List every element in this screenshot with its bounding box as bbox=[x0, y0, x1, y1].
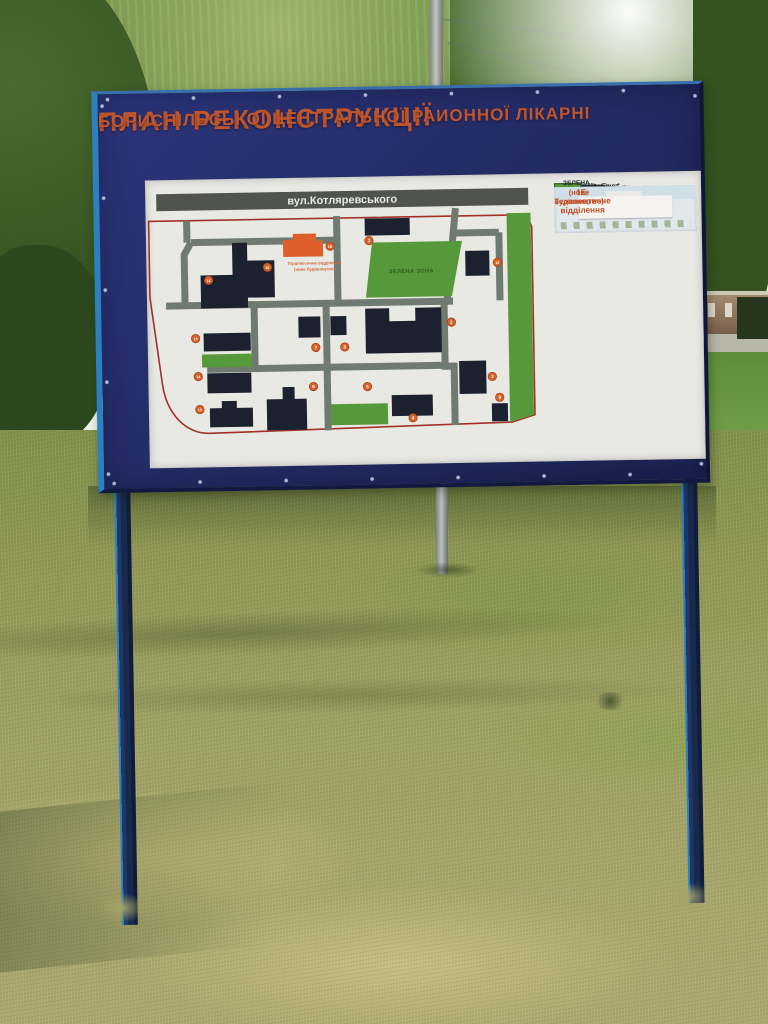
map-marker-label: 11 bbox=[207, 279, 211, 283]
rivets bbox=[112, 471, 698, 486]
new-building-label-2: (нове будівництво) bbox=[294, 266, 336, 272]
site-map: вул.Котляревського bbox=[146, 174, 549, 467]
street-label: вул.Котляревського bbox=[287, 194, 397, 208]
map-marker-label: 10 bbox=[265, 266, 269, 270]
sign-leg-left bbox=[114, 485, 138, 925]
information-board: ПЛАН РЕКОНСТРУКЦІЇ БОРИСПІЛЬСЬКОЇ ЦЕНТРА… bbox=[91, 81, 710, 494]
rivets bbox=[105, 87, 691, 102]
green-zone-map-label: ЗЕЛЕНА ЗОНА bbox=[389, 268, 434, 275]
buildings bbox=[200, 216, 509, 431]
grass-tuft bbox=[98, 893, 146, 923]
map-marker-label: 12 bbox=[495, 261, 499, 265]
rivets bbox=[100, 104, 112, 479]
map-marker-label: 13 bbox=[194, 337, 198, 341]
photo-of-sign: ПЛАН РЕКОНСТРУКЦІЇ БОРИСПІЛЬСЬКОЇ ЦЕНТРА… bbox=[0, 0, 768, 1024]
map-panel: вул.Котляревського bbox=[146, 172, 705, 468]
map-marker-label: 1Е bbox=[328, 245, 333, 249]
map-marker-label: 15 bbox=[198, 408, 202, 412]
note-line2: (нове будівництво) bbox=[554, 187, 604, 206]
sign-assembly: ПЛАН РЕКОНСТРУКЦІЇ БОРИСПІЛЬСЬКОЇ ЦЕНТРА… bbox=[0, 0, 768, 1024]
sign-leg-right bbox=[681, 475, 704, 903]
new-building bbox=[283, 233, 323, 257]
legend: Експлікація: 1.Проф.мед.кабінет2.Пологов… bbox=[544, 172, 705, 461]
map-marker-label: 14 bbox=[196, 375, 200, 379]
grass-tuft bbox=[664, 882, 712, 912]
new-building-label-1: Терапевтичне відділення bbox=[287, 260, 342, 266]
